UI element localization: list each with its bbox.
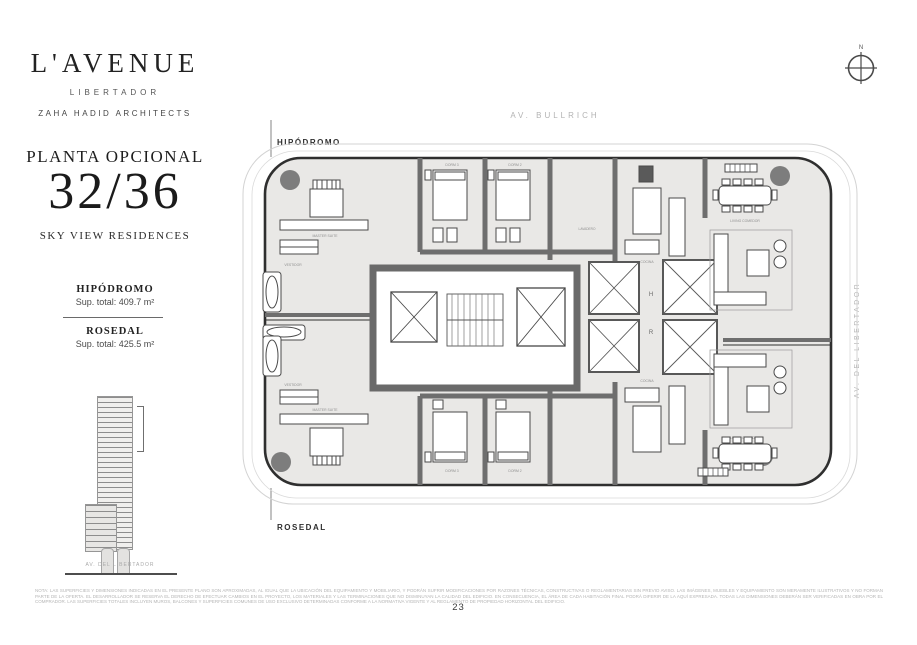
unit-hipodromo-name: HIPÓDROMO [0,284,230,295]
elevator-shaft [391,292,437,342]
kitchen-lower [625,386,685,452]
tower-leg [101,548,114,574]
floors-bracket [137,406,144,452]
room-label: VESTIDOR [284,263,302,267]
brand-subtitle: LIBERTADOR [0,88,230,97]
street-label-top: AV. BULLRICH [510,111,599,120]
ground-line [65,573,177,575]
room-label: MASTER SUITE [312,408,338,412]
floors-label: 32/36 [0,162,230,221]
tower-podium [85,504,117,552]
plan-body: H R MASTER SUITE VESTIDOR [263,158,831,485]
unit-rosedal-area: Sup. total: 425.5 m² [0,339,230,349]
room-label: VESTIDOR [284,383,302,387]
tower-caption: AV. DEL LIBERTADOR [0,562,240,568]
stairs [447,294,503,346]
compass-north-label: N [859,45,863,51]
elevator-shaft [517,288,565,346]
room-label: COCINA [640,379,654,383]
unit-rosedal-name: ROSEDAL [0,326,230,337]
building-core [373,268,577,388]
room-label: DORM 3 [445,163,458,167]
sidebar: L'AVENUE LIBERTADOR ZAHA HADID ARCHITECT… [0,0,230,645]
page-subtitle: SKY VIEW RESIDENCES [0,230,230,242]
brand-logo: L'AVENUE [0,48,230,79]
room-label: LAVADERO [579,227,596,231]
plan-label-hipodromo: HIPÓDROMO [277,138,341,147]
floor-plan: AV. BULLRICH AV. DEL LIBERTADOR HIPÓDROM… [235,100,895,545]
sidebar-divider [63,317,163,318]
elevator-label-h: H [649,292,653,298]
tower-leg [117,548,130,574]
room-label: DORM 3 [445,469,458,473]
room-label: LIVING COMEDOR [730,219,760,223]
room-label: MASTER SUITE [312,234,338,238]
plan-label-rosedal: ROSEDAL [277,523,327,532]
elevator-label-r: R [649,330,654,336]
room-label: DORM 2 [508,469,521,473]
page-number: 23 [0,602,917,613]
unit-hipodromo-area: Sup. total: 409.7 m² [0,297,230,307]
architects-label: ZAHA HADID ARCHITECTS [0,109,230,118]
room-label: DORM 2 [508,163,521,167]
tower-elevation-drawing [55,392,185,570]
room-label: COCINA [640,260,654,264]
compass-icon: N [840,40,882,90]
